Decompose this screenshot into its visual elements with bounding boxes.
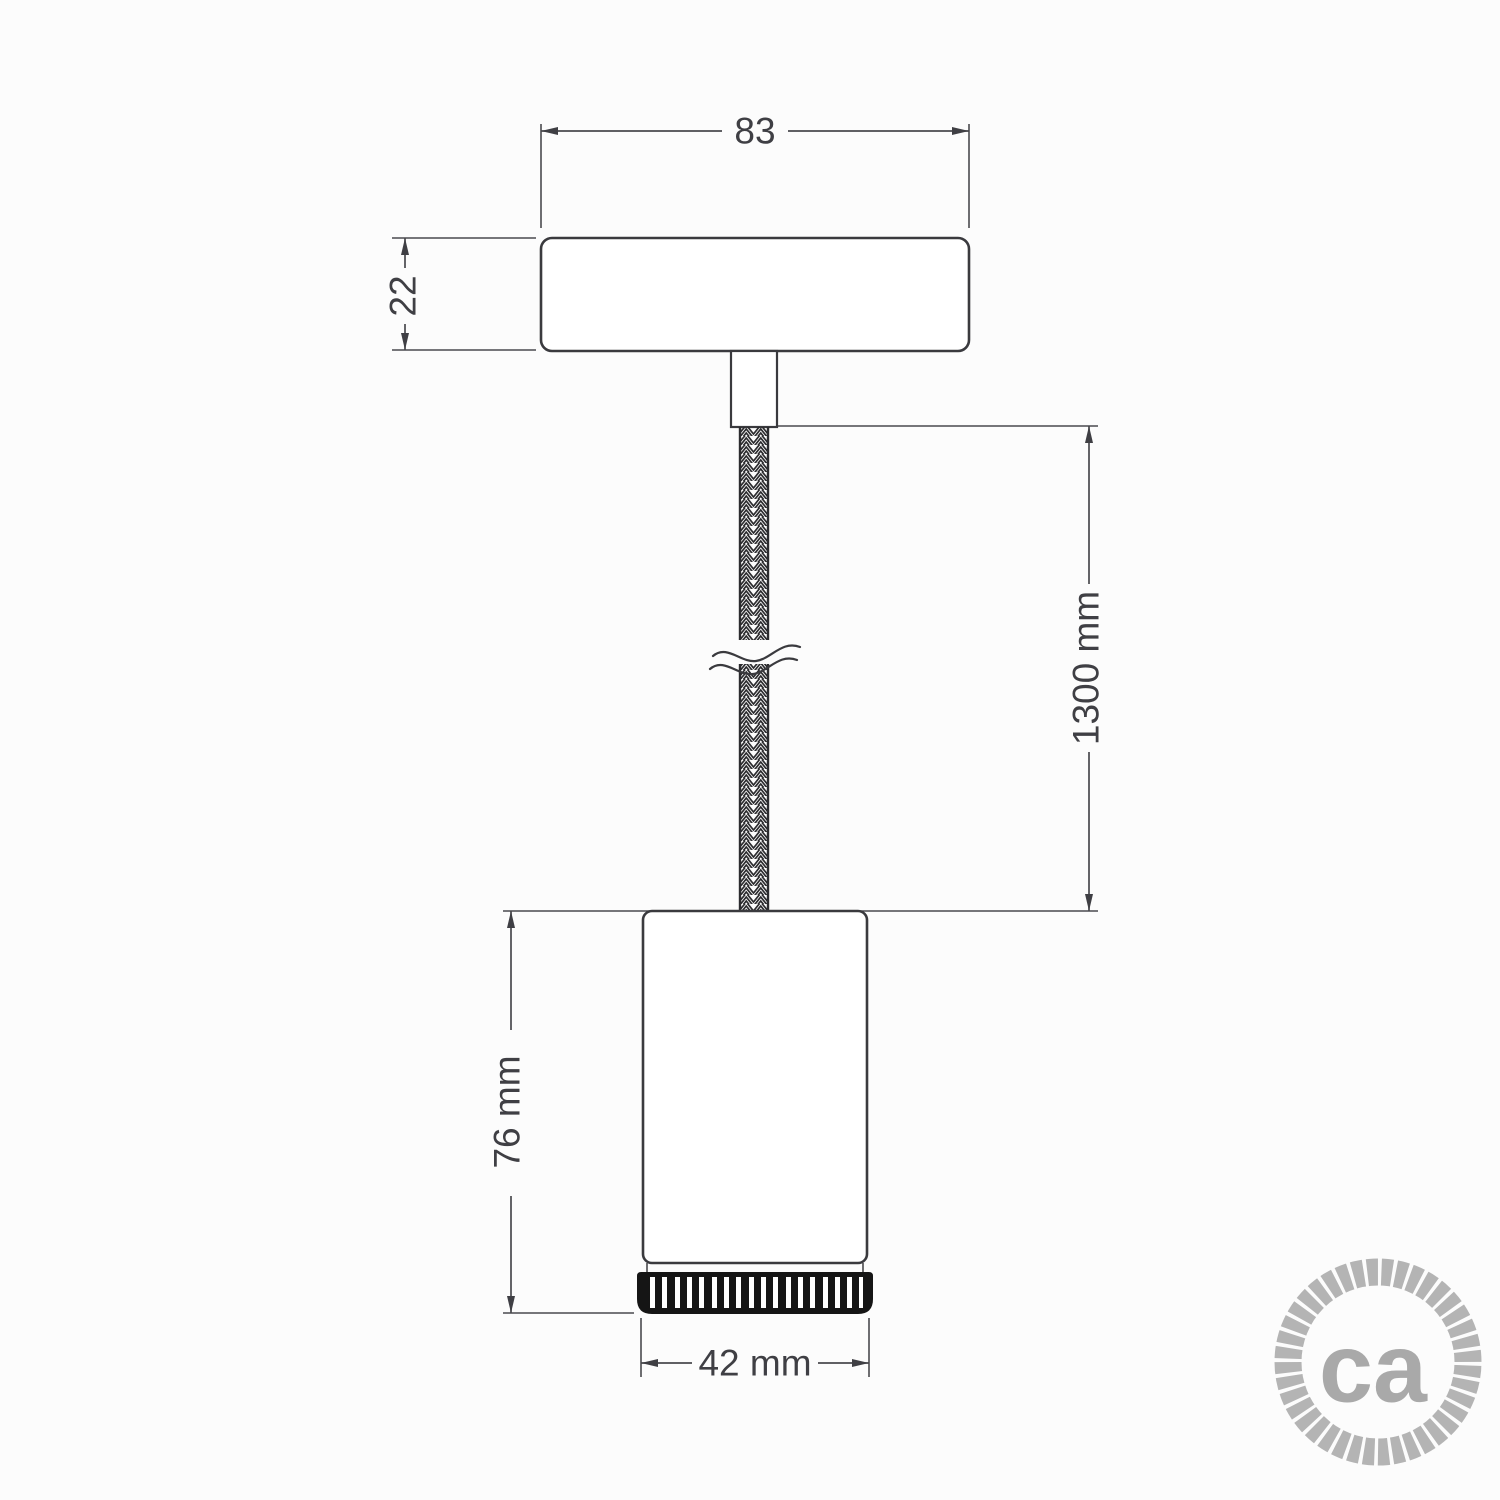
dim-spotlight-diameter: 42 mm — [641, 1343, 869, 1384]
dim-canopy-height: 22 — [383, 238, 424, 350]
logo-text: ca — [1319, 1314, 1428, 1423]
spotlight-body — [643, 911, 867, 1263]
dim-label-canopy-height: 22 — [383, 275, 424, 316]
cable-stem — [731, 351, 777, 427]
ceiling-rose — [541, 238, 969, 351]
dim-canopy-width: 83 — [541, 111, 969, 152]
dim-label-cable-length: 1300 mm — [1066, 591, 1107, 745]
dim-cable-length: 1300 mm — [1066, 426, 1107, 911]
dim-label-spotlight-height: 76 mm — [487, 1055, 528, 1168]
cable-braid-lower — [739, 664, 769, 913]
cable-braid-upper — [739, 427, 769, 640]
pendant-cable — [710, 427, 800, 913]
dim-label-spotlight-diameter: 42 mm — [698, 1343, 811, 1384]
technical-drawing-page: 83 22 1300 mm 76 mm 42 mm ca — [0, 0, 1500, 1500]
pendant-lamp-diagram: 83 22 1300 mm 76 mm 42 mm ca — [0, 0, 1500, 1500]
dim-label-canopy-width: 83 — [734, 111, 775, 152]
spotlight-neck — [647, 1263, 863, 1272]
spotlight-ring — [637, 1272, 873, 1314]
dim-spotlight-height: 76 mm — [487, 911, 528, 1313]
brand-logo: ca — [1288, 1272, 1468, 1452]
